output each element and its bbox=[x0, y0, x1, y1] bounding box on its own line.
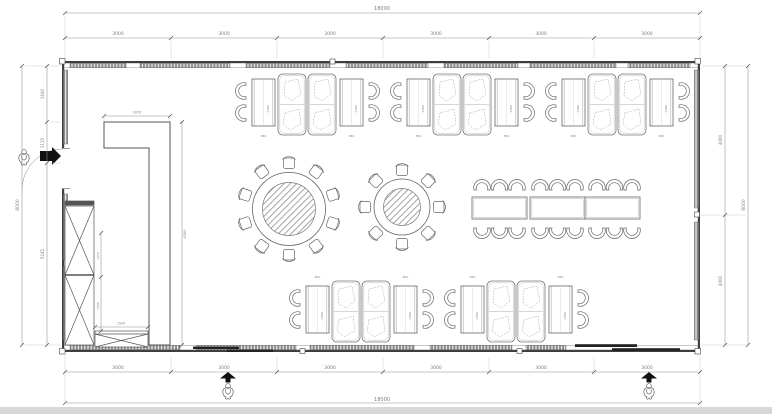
booth-group bbox=[235, 74, 379, 135]
top-seg-dim: 3000 bbox=[112, 31, 124, 37]
top-seg-dim: 3000 bbox=[641, 31, 653, 37]
dim-label: 650 bbox=[261, 134, 267, 138]
right-overall-dim: 8000 bbox=[741, 199, 747, 211]
person-figure-left bbox=[19, 150, 29, 165]
dim-label: 650 bbox=[349, 134, 355, 138]
person-figure-bottom-left bbox=[223, 384, 233, 399]
bottom-seg-dim: 3000 bbox=[324, 365, 336, 371]
service-counter bbox=[95, 331, 148, 347]
cabinet-dim-a: 1250 bbox=[96, 252, 100, 260]
bottom-left-entry-arrow bbox=[220, 372, 236, 383]
dim-label: 650 bbox=[403, 275, 409, 279]
booth-group bbox=[390, 74, 534, 135]
right-seg-dim: 4000 bbox=[718, 134, 723, 145]
dim-label: 650 bbox=[571, 134, 577, 138]
service-partition bbox=[104, 122, 170, 345]
viewport-edge-strip bbox=[0, 407, 772, 414]
top-seg-dim: 3000 bbox=[535, 31, 547, 37]
bottom-seg-dim: 3000 bbox=[112, 365, 124, 371]
dim-label: 650 bbox=[659, 134, 665, 138]
dim-label: 650 bbox=[416, 134, 422, 138]
left-seg-dim: 5245 bbox=[40, 248, 45, 259]
left-overall-dim: 8000 bbox=[15, 199, 21, 211]
dim-label: 650 bbox=[315, 275, 321, 279]
partition-height-dim: 6300 bbox=[183, 230, 187, 239]
dim-label: 650 bbox=[470, 275, 476, 279]
right-seg-dim: 4000 bbox=[718, 275, 723, 286]
booth-group bbox=[444, 281, 588, 342]
round-table-small bbox=[359, 164, 446, 251]
top-seg-dim: 3000 bbox=[430, 31, 442, 37]
lazy-susan bbox=[263, 183, 316, 236]
bottom-seg-dim: 3000 bbox=[641, 365, 653, 371]
bottom-right-entry-arrow bbox=[641, 372, 657, 383]
top-seg-dim: 3000 bbox=[218, 31, 230, 37]
left-entry-arrow bbox=[40, 147, 61, 165]
banquet-table-row bbox=[472, 179, 640, 238]
left-seg-dim: 1640 bbox=[40, 88, 45, 99]
booth-group bbox=[289, 281, 433, 342]
top-seg-dim: 3000 bbox=[324, 31, 336, 37]
booth-group bbox=[545, 74, 689, 135]
partition-width-dim: 1870 bbox=[133, 111, 142, 115]
person-figure-bottom-right bbox=[644, 384, 654, 399]
bottom-seg-dim: 3000 bbox=[430, 365, 442, 371]
floor-plan-drawing: 1300 bbox=[0, 0, 772, 414]
lazy-susan bbox=[384, 189, 421, 226]
bottom-seg-dim: 3000 bbox=[218, 365, 230, 371]
counter-width-dim: 1500 bbox=[117, 322, 125, 326]
dim-label: 650 bbox=[504, 134, 510, 138]
top-overall-dim: 18000 bbox=[374, 6, 390, 12]
left-seg-dim: 1115 bbox=[40, 137, 45, 148]
booth-groups-bottom-row bbox=[289, 281, 588, 342]
floor-plan-canvas: 1300 bbox=[0, 0, 772, 414]
round-table-large bbox=[237, 157, 341, 262]
booth-groups-top-row bbox=[235, 74, 689, 135]
dim-label: 650 bbox=[558, 275, 564, 279]
bottom-seg-dim: 3000 bbox=[535, 365, 547, 371]
cabinet-dim-b: 1500 bbox=[96, 302, 100, 310]
left-cabinets bbox=[65, 201, 94, 345]
bottom-overall-dim: 18000 bbox=[374, 397, 390, 403]
